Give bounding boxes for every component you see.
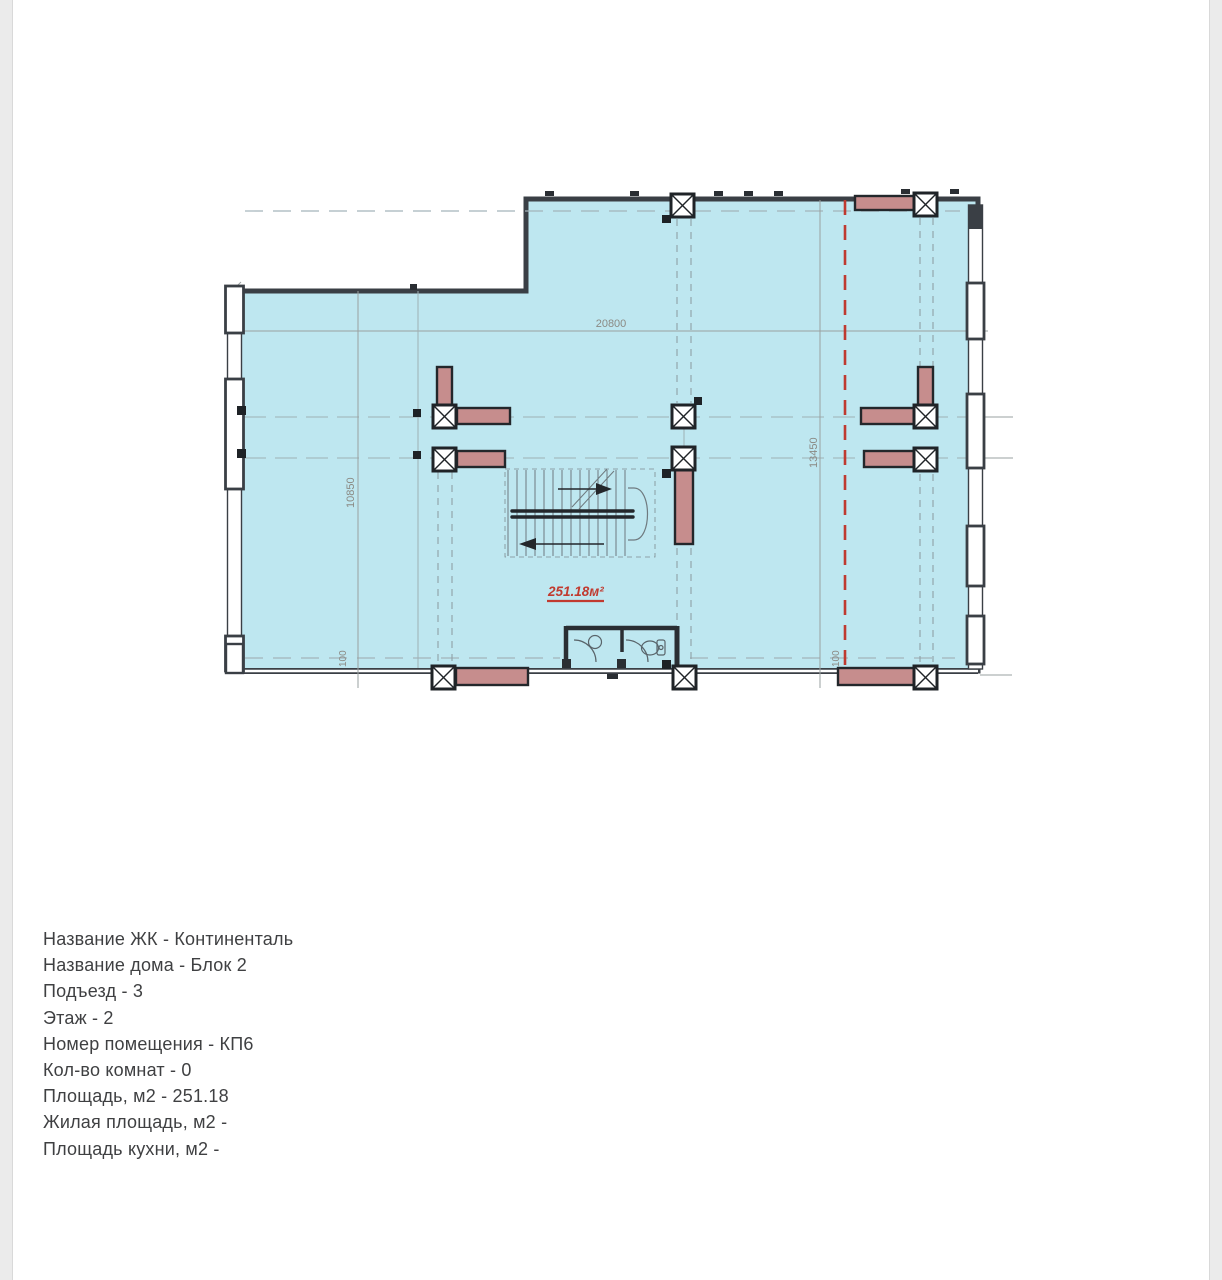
info-line-floor: Этаж - 2 [43,1005,293,1031]
dim-offset-left: 100 [338,650,349,667]
dim-right-height: 13450 [808,437,820,468]
info-line-living-area: Жилая площадь, м2 - [43,1109,293,1135]
info-line-complex-name: Название ЖК - Континенталь [43,926,293,952]
unit-info-block: Название ЖК - Континенталь Название дома… [43,926,293,1162]
info-line-kitchen-area: Площадь кухни, м2 - [43,1136,293,1162]
right-wall-windows [967,205,984,669]
info-line-total-area: Площадь, м2 - 251.18 [43,1083,293,1109]
svg-text:251.18м²: 251.18м² [547,584,604,599]
floor-plan-drawing: 20800 10850 13450 100 100 251.18м² [0,0,1222,780]
dim-offset-right: 100 [831,650,842,667]
room-outline [232,199,978,673]
left-wall-windows [226,286,244,673]
info-line-building-name: Название дома - Блок 2 [43,952,293,978]
area-label: 251.18м² [547,584,604,601]
info-line-entrance: Подъезд - 3 [43,978,293,1004]
info-line-rooms-count: Кол-во комнат - 0 [43,1057,293,1083]
info-line-unit-number: Номер помещения - КП6 [43,1031,293,1057]
dim-left-height: 10850 [345,477,357,508]
floor-plan: 20800 10850 13450 100 100 251.18м² [0,0,1222,780]
dim-width: 20800 [596,318,627,330]
